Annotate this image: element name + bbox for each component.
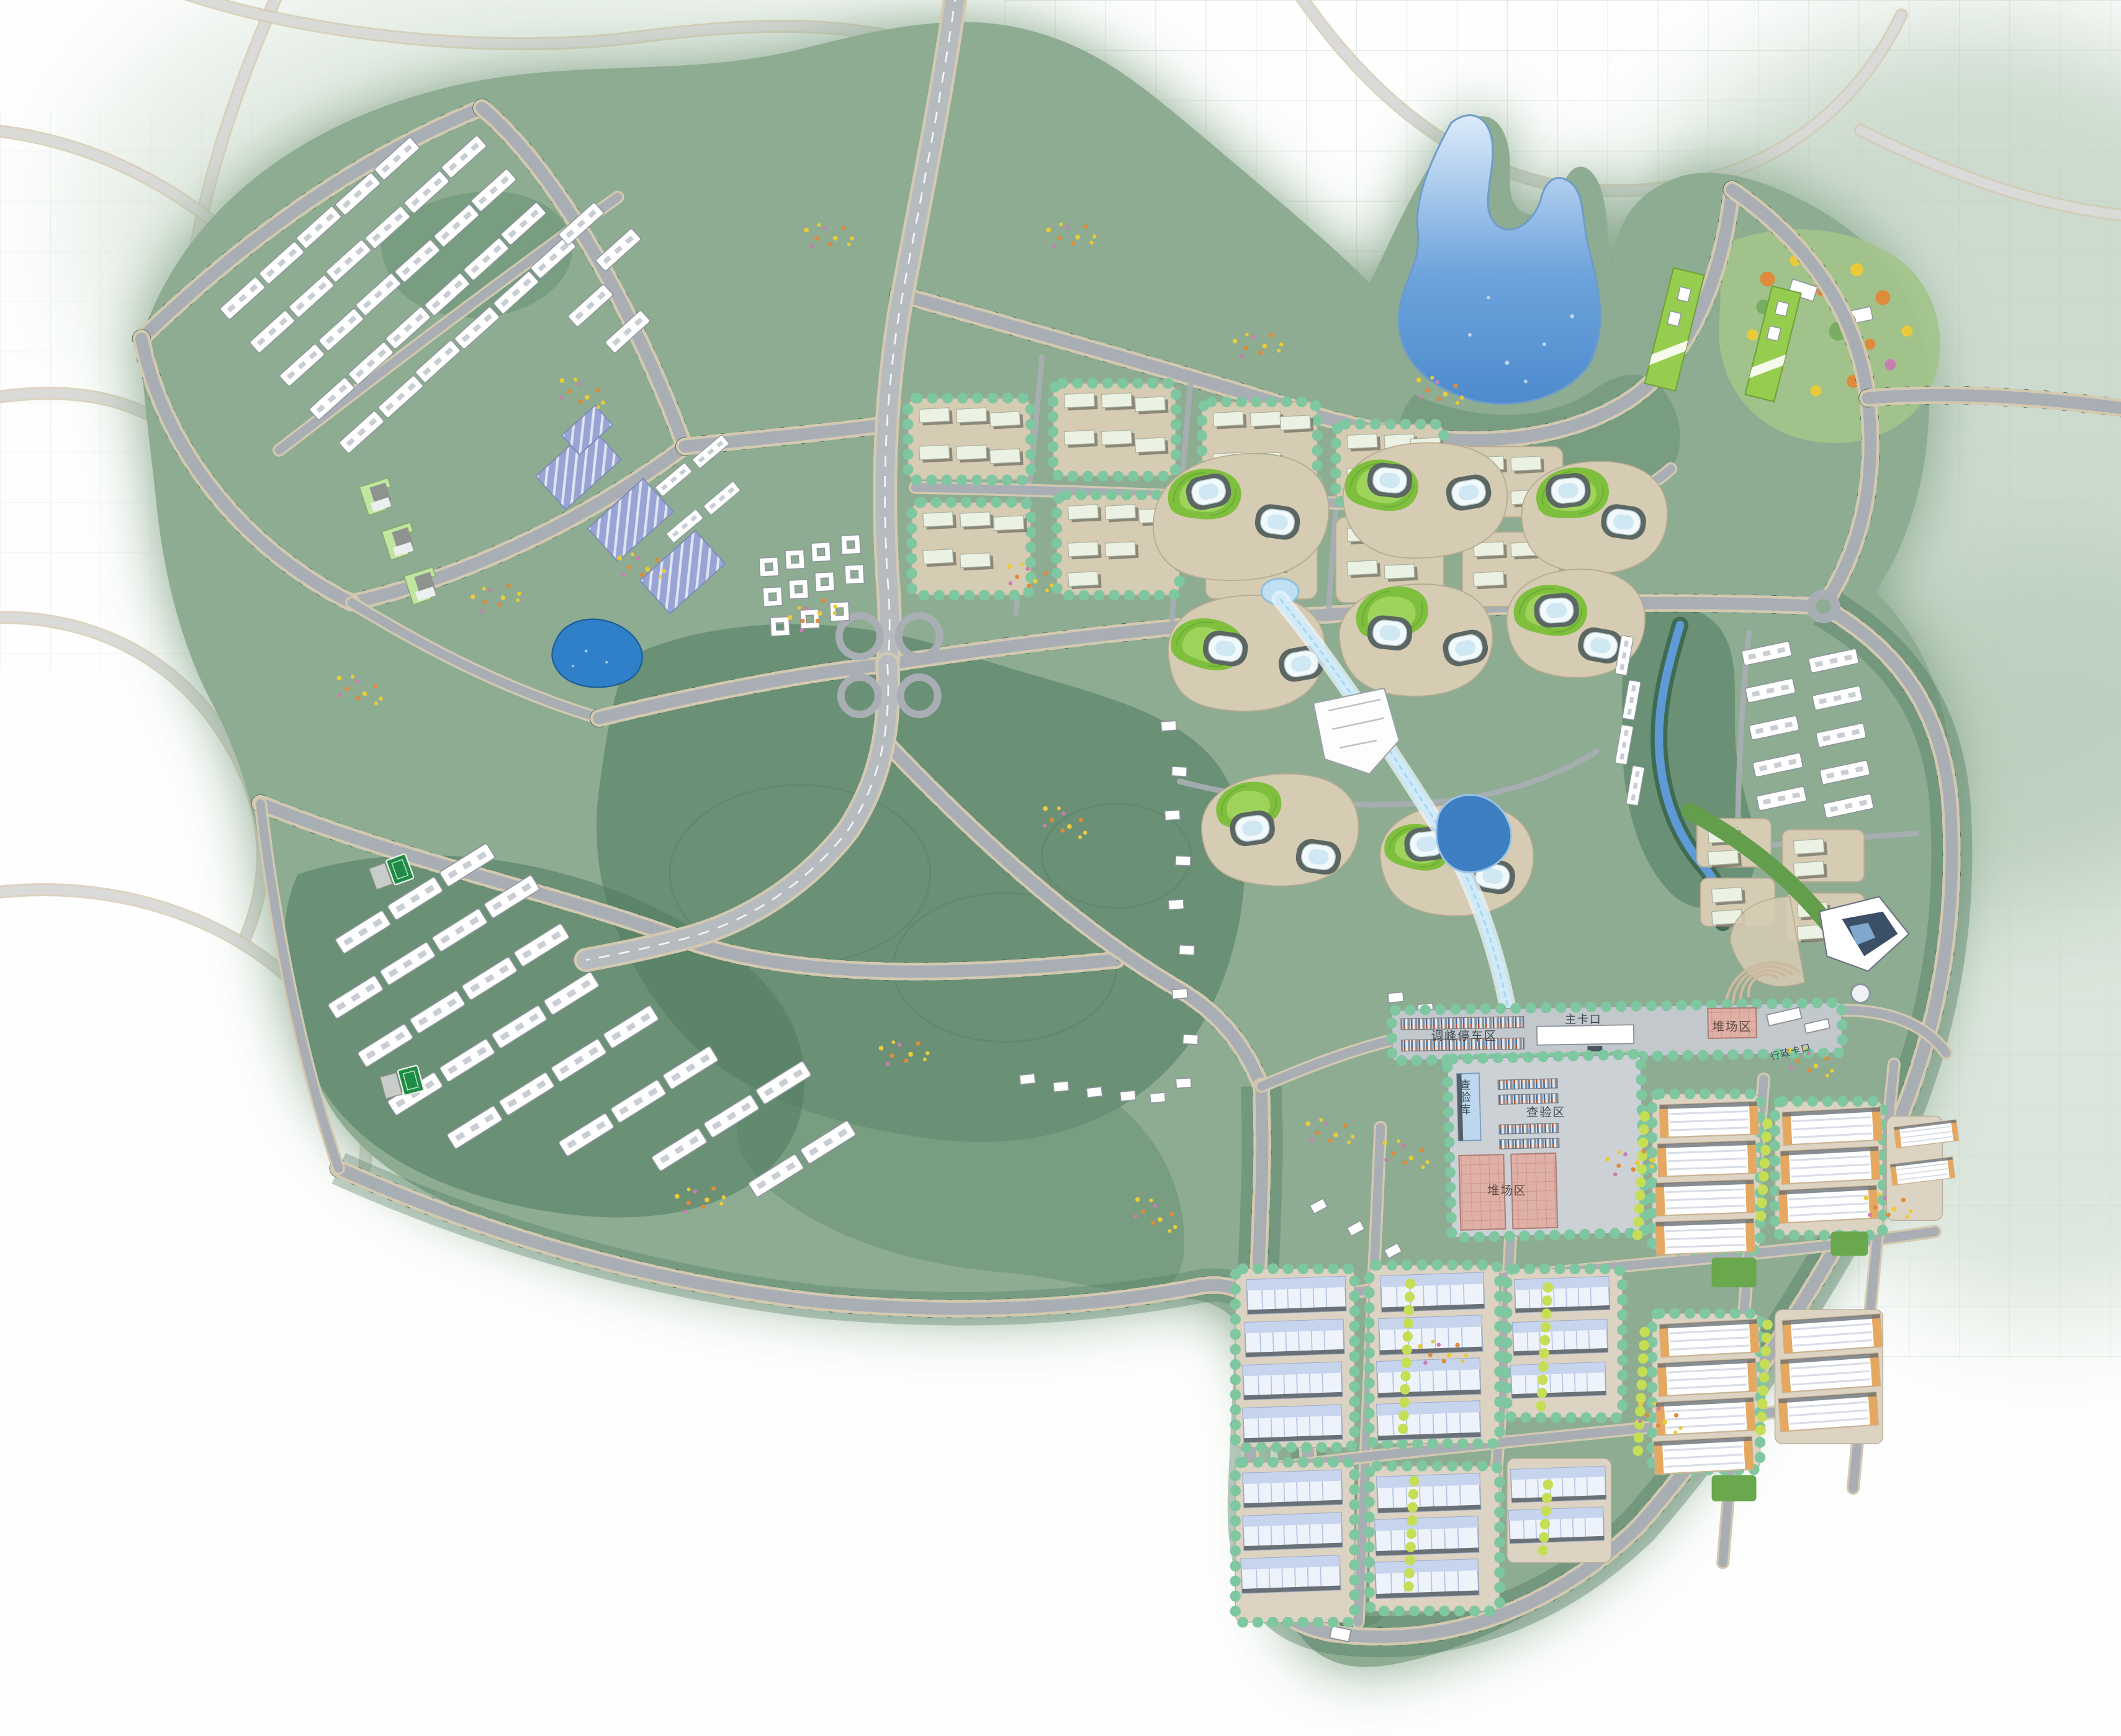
round-plaza xyxy=(1851,984,1870,1003)
truck-parking-strip xyxy=(1401,1017,1524,1030)
label-peak-parking-area: 调峰停车区 xyxy=(1431,1029,1497,1043)
label-main-gate: 主卡口 xyxy=(1565,1014,1601,1027)
station-building xyxy=(1537,1025,1634,1045)
label-inspection-warehouse: 查验库 xyxy=(1457,1079,1470,1116)
masterplan-canvas: 调峰停车区 主卡口 堆场区 行政卡口 查验库 查验区 堆场区 xyxy=(0,0,2121,1736)
roundabout xyxy=(1806,590,1840,623)
label-inspection-area: 查验区 xyxy=(1526,1105,1566,1119)
label-yard-area: 堆场区 xyxy=(1487,1183,1527,1197)
label-yard-building: 堆场区 xyxy=(1713,1020,1752,1034)
